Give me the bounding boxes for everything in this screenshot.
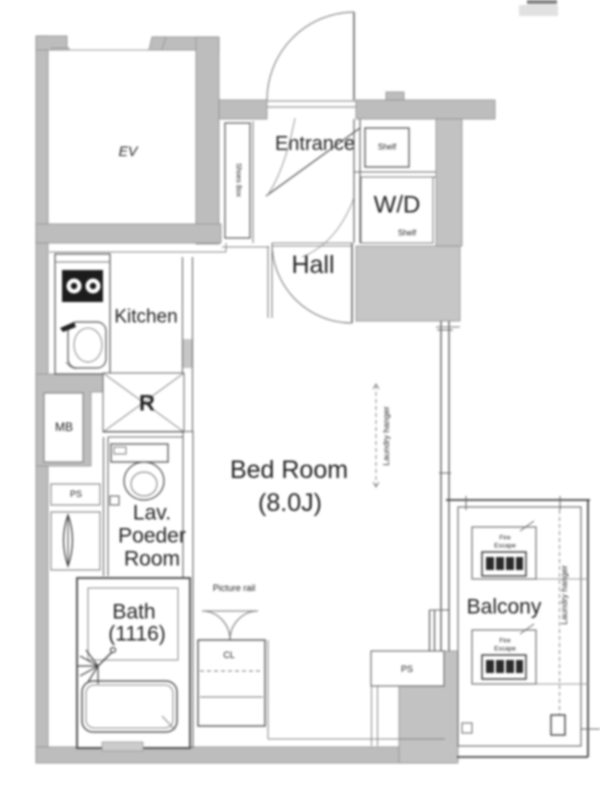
svg-text:Balcony: Balcony [467, 596, 542, 619]
svg-text:Bath: Bath [112, 601, 155, 624]
svg-text:Room: Room [124, 548, 180, 571]
svg-text:Bed Room: Bed Room [230, 456, 348, 484]
svg-text:Laundry hanger: Laundry hanger [559, 565, 569, 625]
svg-text:Escape: Escape [494, 646, 516, 653]
svg-text:Hall: Hall [291, 251, 334, 279]
svg-text:Kitchen: Kitchen [114, 307, 177, 328]
svg-text:CL: CL [223, 650, 235, 660]
svg-text:Laundry hanger: Laundry hanger [381, 406, 391, 466]
svg-text:(8.0J): (8.0J) [258, 489, 322, 517]
svg-text:(1116): (1116) [108, 623, 166, 646]
svg-text:Lav.: Lav. [133, 502, 171, 525]
svg-text:PS: PS [401, 664, 413, 674]
svg-text:Poeder: Poeder [118, 525, 186, 548]
svg-text:W/D: W/D [374, 192, 421, 219]
svg-text:Escape: Escape [494, 543, 516, 550]
svg-text:R: R [139, 391, 155, 416]
svg-text:Shelf: Shelf [378, 143, 397, 152]
svg-text:EV: EV [119, 143, 139, 159]
svg-text:MB: MB [55, 420, 73, 434]
svg-text:Shoes Box: Shoes Box [235, 163, 242, 197]
svg-text:Shelf: Shelf [398, 229, 417, 238]
svg-text:Fire: Fire [499, 535, 511, 542]
svg-text:Picture rail: Picture rail [213, 583, 256, 593]
svg-text:Fire: Fire [499, 638, 511, 645]
svg-text:PS: PS [70, 489, 82, 499]
